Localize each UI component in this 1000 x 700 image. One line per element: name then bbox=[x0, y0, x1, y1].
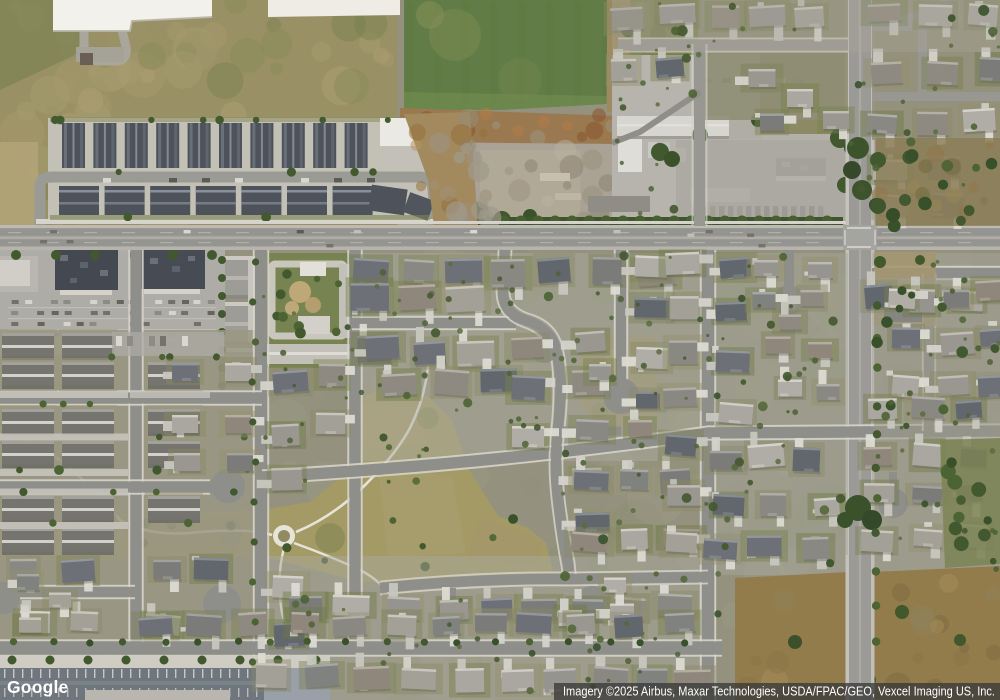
svg-text:Google: Google bbox=[7, 677, 69, 697]
svg-text:Imagery ©2025 Airbus, Maxar Te: Imagery ©2025 Airbus, Maxar Technologies… bbox=[563, 685, 995, 699]
